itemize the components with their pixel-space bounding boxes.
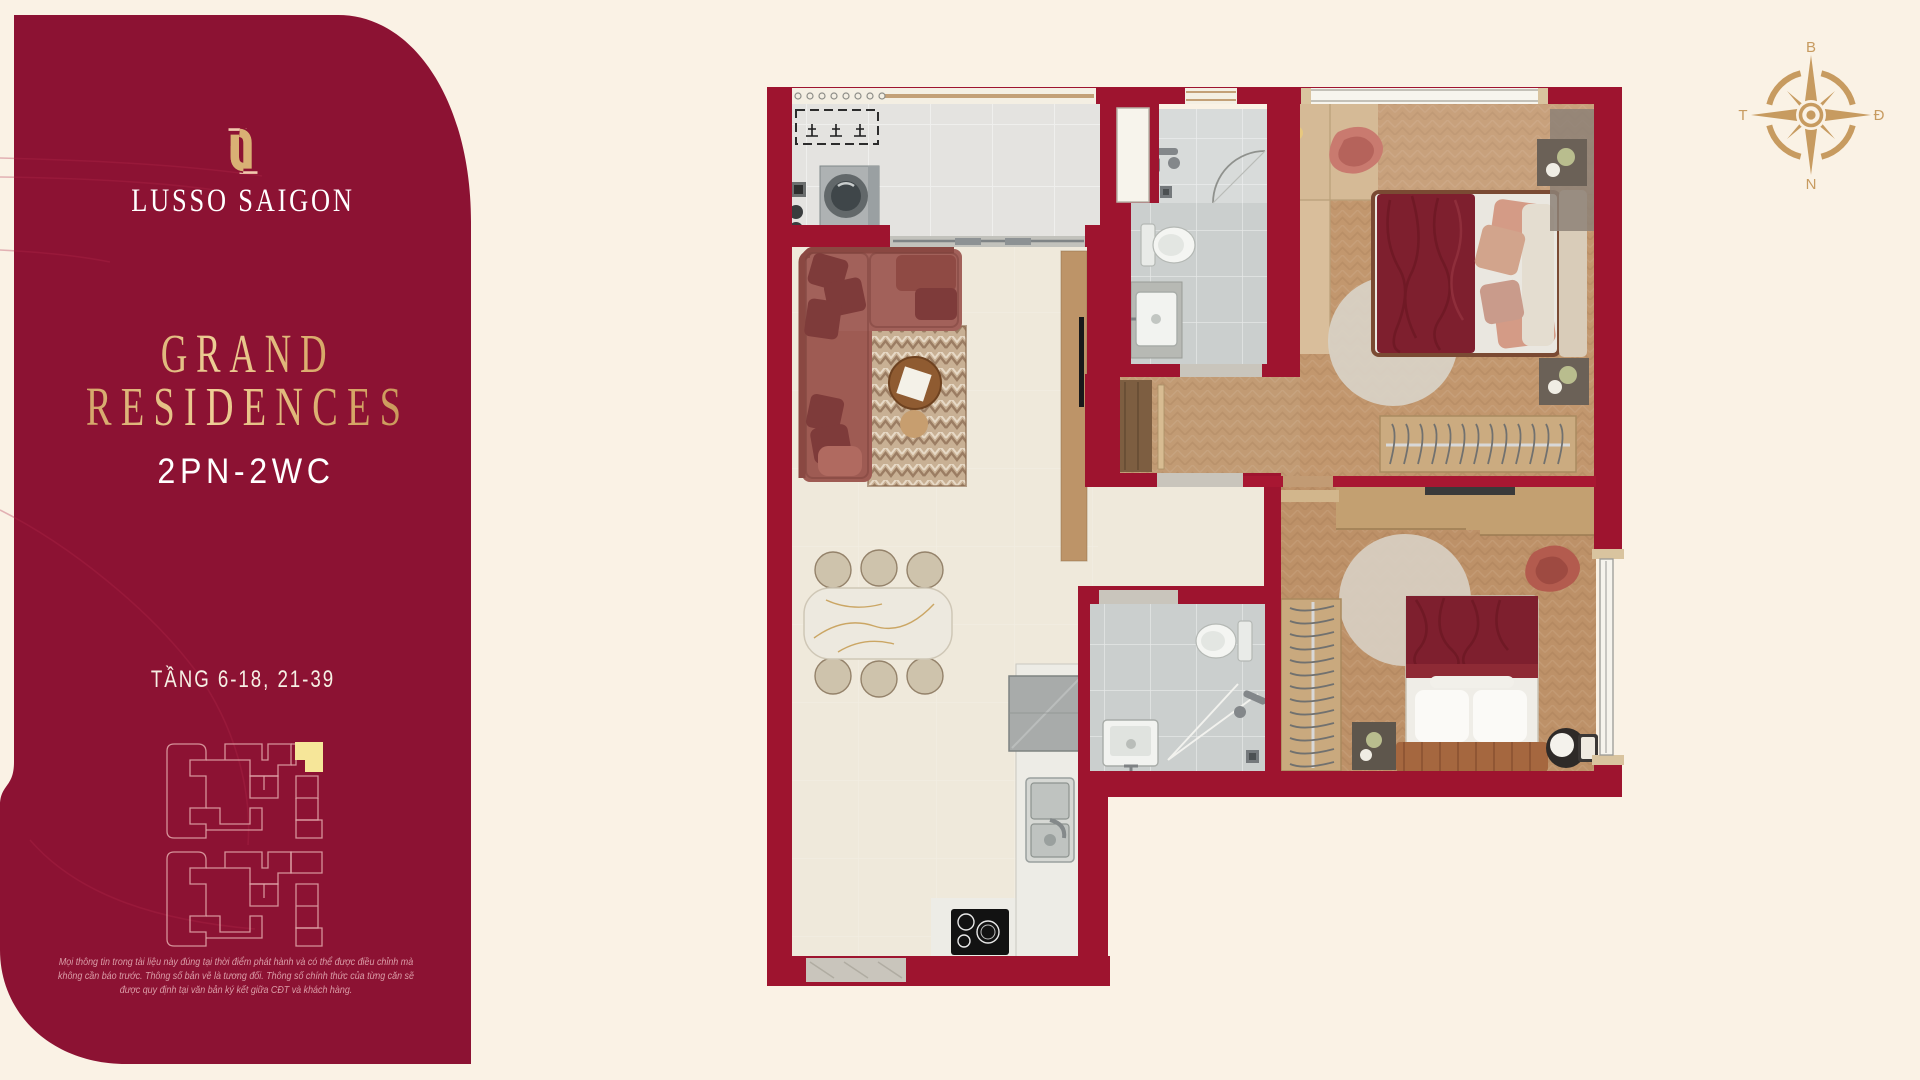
svg-text:N: N <box>1806 176 1817 193</box>
svg-text:Đ: Đ <box>1874 107 1885 124</box>
svg-text:T: T <box>1738 107 1747 124</box>
svg-text:B: B <box>1806 39 1816 56</box>
